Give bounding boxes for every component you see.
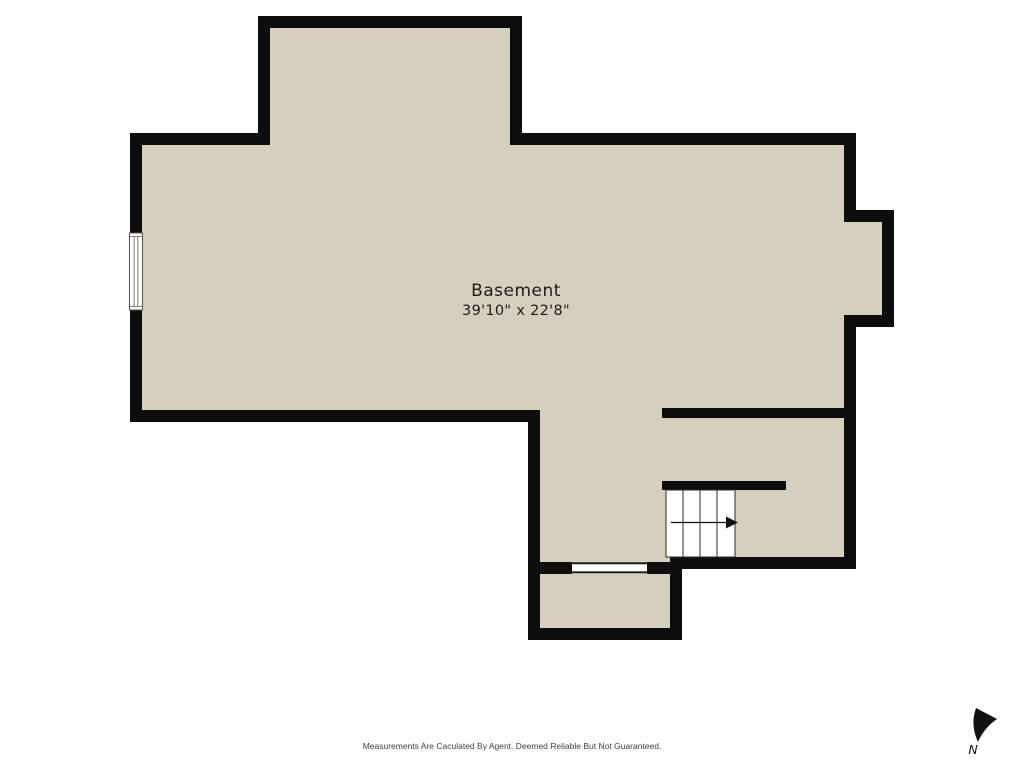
floorplan-page: N Basement 39'10" x 22'8" Measurements A…	[0, 0, 1024, 768]
door-opening	[572, 562, 647, 574]
stairs	[666, 490, 738, 557]
window	[130, 233, 143, 310]
room-name-label: Basement	[396, 281, 636, 301]
interior-wall	[662, 408, 845, 418]
room-dimensions-label: 39'10" x 22'8"	[396, 303, 636, 319]
disclaimer-text: Measurements Are Caculated By Agent. Dee…	[0, 741, 1024, 751]
floorplan-drawing: N	[0, 0, 1024, 768]
stair-half-wall	[662, 481, 786, 490]
